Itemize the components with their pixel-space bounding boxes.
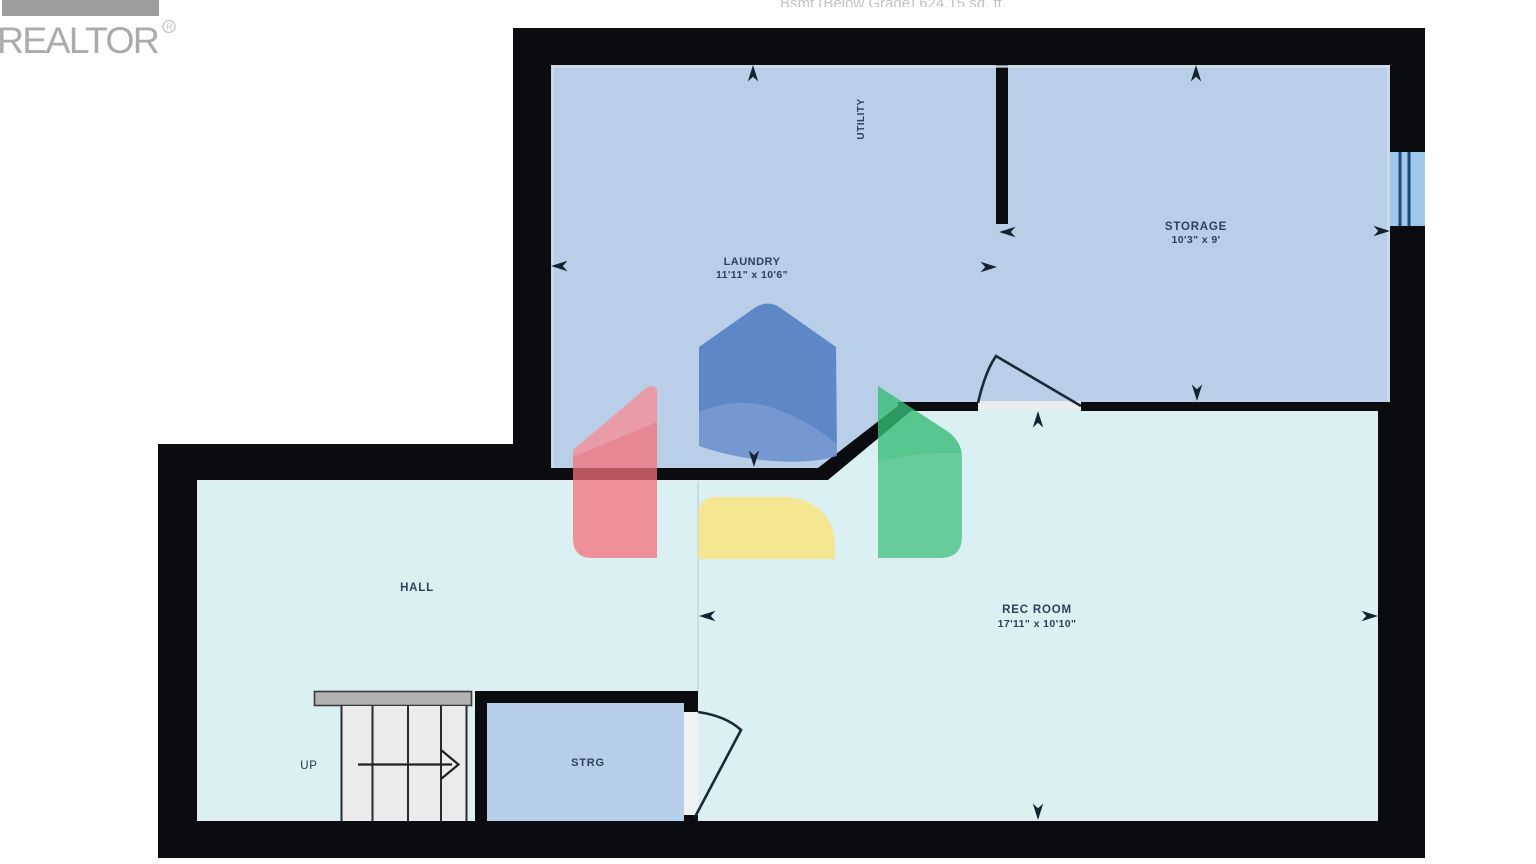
svg-text:REC ROOM: REC ROOM [1002, 604, 1072, 616]
svg-text:R: R [167, 23, 173, 32]
svg-text:17'11" x 10'10": 17'11" x 10'10" [998, 618, 1077, 630]
svg-text:10'3" x 9': 10'3" x 9' [1171, 234, 1220, 246]
svg-text:UP: UP [300, 760, 318, 772]
svg-text:STORAGE: STORAGE [1165, 221, 1227, 233]
svg-text:UTILITY: UTILITY [856, 98, 867, 139]
svg-text:REALTOR: REALTOR [0, 19, 159, 61]
svg-text:HALL: HALL [400, 582, 434, 594]
svg-text:STRG: STRG [571, 757, 605, 769]
svg-text:11'11" x 10'6": 11'11" x 10'6" [716, 269, 788, 281]
svg-text:LAUNDRY: LAUNDRY [724, 256, 781, 268]
